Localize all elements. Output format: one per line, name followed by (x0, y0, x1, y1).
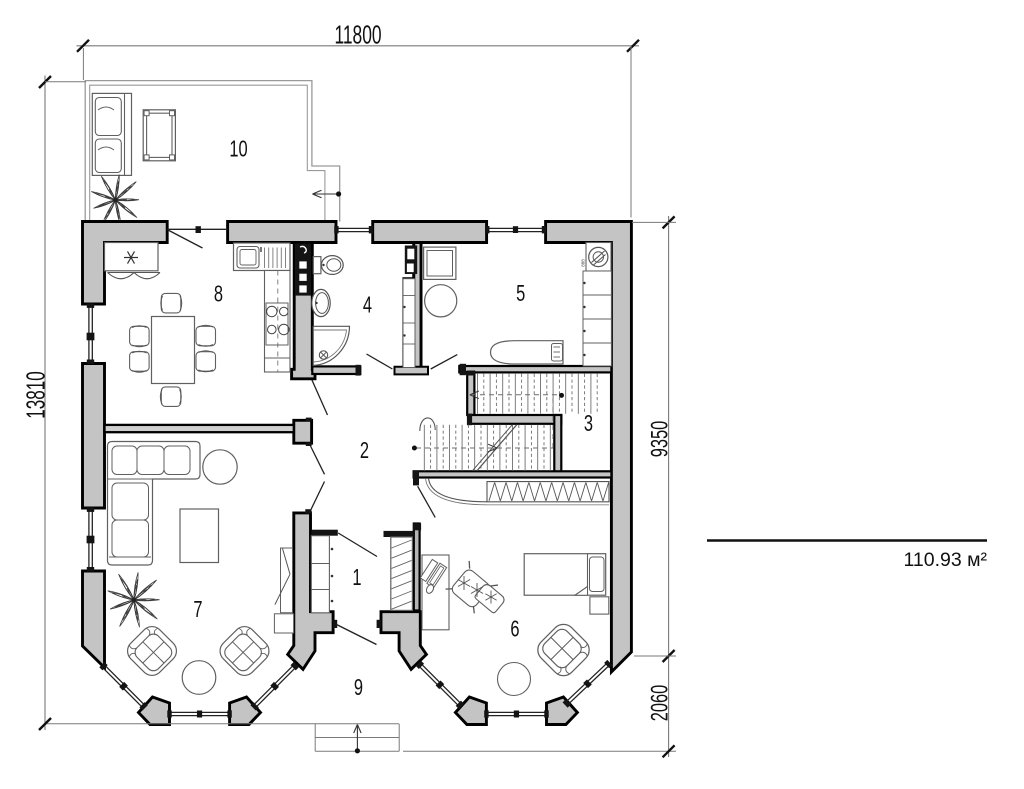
svg-text:4: 4 (363, 293, 372, 318)
svg-text:5: 5 (516, 281, 525, 306)
svg-text:11800: 11800 (334, 20, 381, 49)
svg-text:110.93 м²: 110.93 м² (903, 549, 987, 571)
svg-text:1: 1 (352, 565, 361, 590)
svg-text:8: 8 (214, 282, 223, 307)
svg-text:7: 7 (193, 597, 202, 622)
svg-text:888: 888 (581, 259, 586, 267)
svg-text:2: 2 (360, 438, 369, 463)
svg-text:6: 6 (510, 617, 519, 642)
svg-text:10: 10 (229, 137, 247, 162)
svg-text:13810: 13810 (21, 371, 50, 418)
svg-text:3: 3 (584, 411, 593, 436)
svg-text:9350: 9350 (646, 421, 673, 458)
svg-text:9: 9 (354, 675, 363, 700)
svg-text:2060: 2060 (646, 685, 673, 722)
